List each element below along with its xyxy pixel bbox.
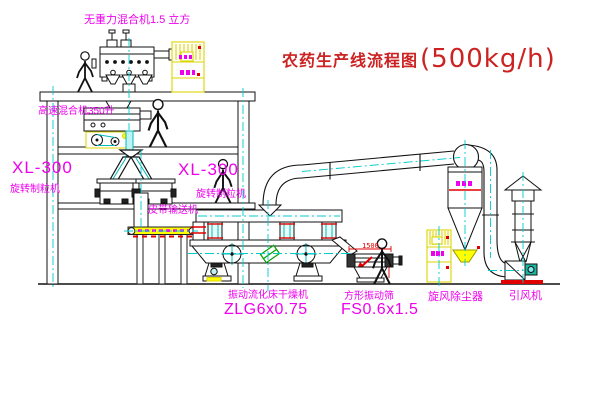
label-gravity-mixer: 无重力混合机1.5 立方 xyxy=(84,14,190,26)
label-granulator-left-name: 旋转制粒机 xyxy=(10,184,60,195)
label-granulator-left-model: XL-300 xyxy=(12,159,73,178)
y-splitter-chute xyxy=(108,150,154,183)
label-cyclone: 旋风除尘器 xyxy=(428,291,483,303)
process-flow-diagram: 农药生产线流程图 (500kg/h) 无重力混合机1.5 立方 高速混合机350… xyxy=(0,0,600,403)
title-text: 农药生产线流程图 xyxy=(282,47,418,71)
title-capacity: (500kg/h) xyxy=(420,44,556,74)
label-dryer-name: 振动流化床干燥机 xyxy=(228,290,308,301)
bucket-elevator-1 xyxy=(172,42,204,92)
worker-top-floor xyxy=(77,52,93,92)
worker-second-floor xyxy=(149,100,168,147)
cyclone-marks xyxy=(456,181,472,186)
diagram-title: 农药生产线流程图 (500kg/h) xyxy=(282,44,556,74)
label-fan: 引风机 xyxy=(509,290,542,302)
granulator-left-equipment xyxy=(95,179,136,204)
elevator-2-marks xyxy=(431,251,444,256)
label-granulator-right-name: 旋转制粒机 xyxy=(196,189,246,200)
induced-draft-fan-equipment xyxy=(501,261,543,284)
label-granulator-right-model: XL-300 xyxy=(178,161,239,180)
label-sieve-model: FS0.6x1.5 xyxy=(341,301,418,319)
label-high-speed-mixer: 高速混合机350升 xyxy=(38,106,115,117)
dryer-nozzles xyxy=(207,222,337,240)
gravity-mixer-equipment xyxy=(92,30,172,92)
label-dryer-model: ZLG6x0.75 xyxy=(224,301,308,319)
label-belt-conveyor: 皮带输送机 xyxy=(148,205,198,216)
dimension-sieve-length: 1500 xyxy=(362,242,379,250)
belt-conveyor-equipment xyxy=(128,227,196,284)
